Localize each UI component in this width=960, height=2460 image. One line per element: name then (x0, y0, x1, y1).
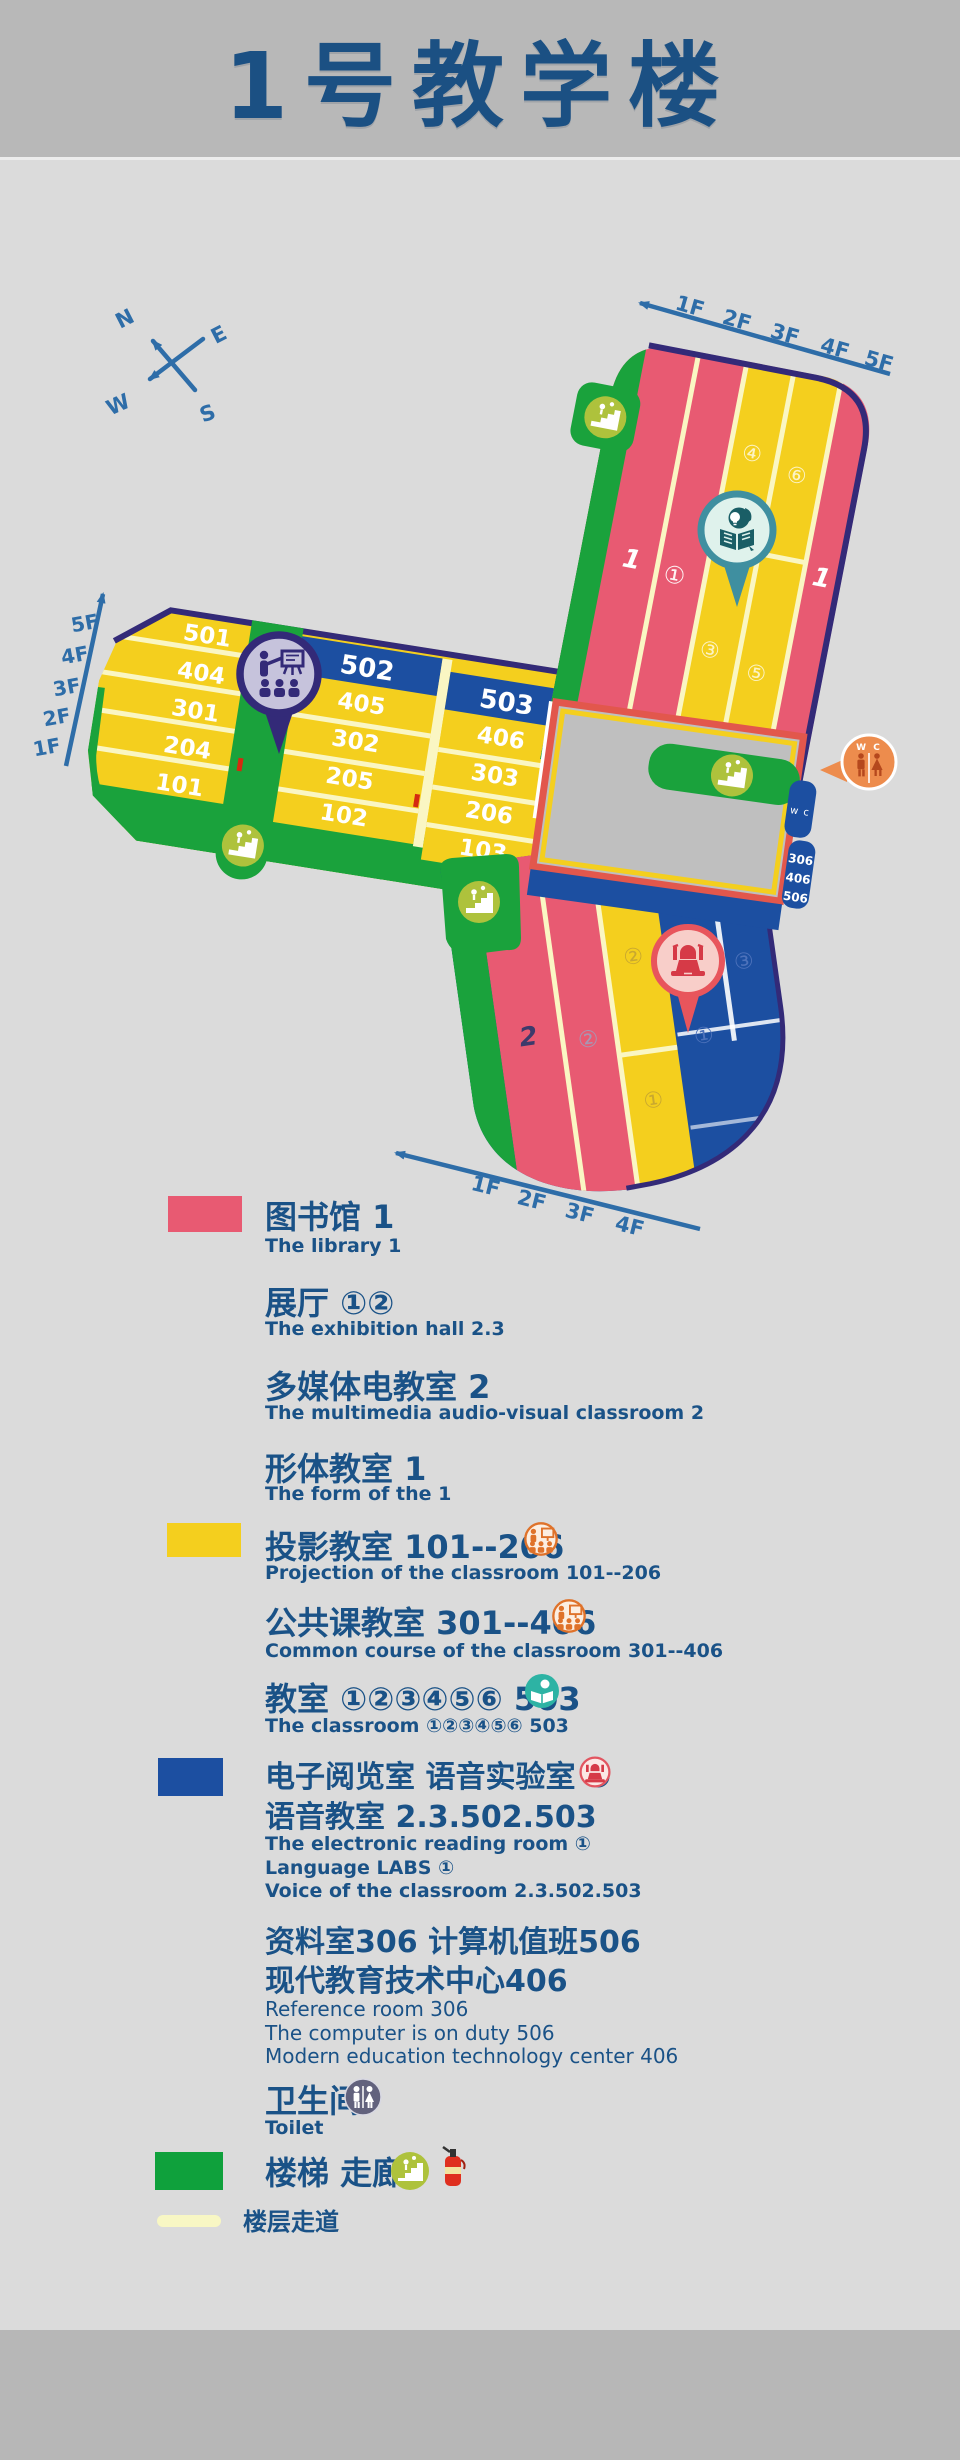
page-title: 1号教学楼 (224, 12, 736, 145)
zone-label: ① (692, 1023, 715, 1051)
legend-en: Common course of the classroom 301--406 (265, 1640, 723, 1662)
fire-extinguisher-icon (440, 2144, 466, 2196)
legend-title: 资料室306 计算机值班506 (265, 1917, 641, 1961)
legend-en: The electronic reading room ① (265, 1833, 591, 1855)
floor-label: 1F (31, 733, 62, 761)
compass-w: W (103, 389, 134, 420)
title-banner: 1号教学楼 (0, 0, 960, 160)
floor-label: 3F (768, 319, 802, 350)
floor-label: 4F (59, 641, 90, 669)
floor-label: 3F (51, 673, 82, 701)
legend-title: 公共课教室 301--406 (265, 1598, 596, 1644)
legend-en: Language LABS ① (265, 1857, 454, 1879)
floor-label: 2F (41, 703, 72, 731)
common-classroom-icon (550, 1597, 588, 1639)
legend-en: Modern education technology center 406 (265, 2044, 678, 2068)
classroom-icon (522, 1671, 562, 1715)
legend-en: The form of the 1 (265, 1483, 451, 1505)
legend-en: The multimedia audio-visual classroom 2 (265, 1402, 704, 1424)
legend-en: Toilet (265, 2117, 323, 2139)
zone-label: ① (642, 1087, 665, 1115)
language-lab-icon (577, 1754, 613, 1794)
zone-label: ② (622, 944, 645, 972)
floor-plan-map: N E W S 1F 2F 3F 4F 5F 5F 4F 3F 2F 1F 1F… (0, 0, 960, 2460)
legend-title: 楼梯 走廊 (265, 2148, 404, 2194)
legend-title: 图书馆 1 (265, 1192, 394, 1238)
wc-pin-label: W C (856, 743, 882, 753)
legend-title2: 语音教室 2.3.502.503 (265, 1792, 597, 1836)
legend-swatch-electronic (158, 1758, 223, 1796)
projection-classroom-icon (522, 1520, 560, 1562)
legend-title: 电子阅览室 语音实验室 ① (265, 1752, 611, 1796)
floor-label: 1F (673, 291, 707, 322)
legend-label: 楼层走道 (243, 2202, 339, 2237)
zone-label: ② (576, 1026, 600, 1055)
legend-swatch-library (168, 1196, 242, 1232)
stairs-icon (388, 2149, 432, 2197)
building-map-sign: N E W S 1F 2F 3F 4F 5F 5F 4F 3F 2F 1F 1F… (0, 0, 960, 2460)
zone-label: ③ (733, 948, 756, 976)
footer-band (0, 2330, 960, 2460)
legend-en: The exhibition hall 2.3 (265, 1318, 505, 1340)
legend-swatch-projection (167, 1523, 241, 1557)
compass-rose: N E W S (103, 304, 231, 427)
floor-label: 5F (862, 346, 896, 377)
legend-en: The classroom ①②③④⑤⑥ 503 (265, 1715, 569, 1737)
legend-swatch-corridor (157, 2215, 221, 2227)
compass-s: S (196, 400, 218, 428)
floor-label: 2F (720, 305, 754, 336)
toilet-pin: W C (820, 735, 896, 789)
floor-label: 5F (69, 609, 100, 637)
legend-en: Reference room 306 (265, 1997, 468, 2021)
courtyard (522, 701, 806, 930)
compass-e: E (207, 321, 231, 349)
legend-swatch-stairs (155, 2152, 223, 2190)
legend-en: The library 1 (265, 1235, 401, 1257)
legend-en: The computer is on duty 506 (265, 2021, 555, 2045)
legend-en: Voice of the classroom 2.3.502.503 (265, 1880, 642, 1902)
floor-label: 1F (469, 1171, 503, 1201)
floor-label: 4F (818, 333, 852, 364)
compass-n: N (112, 304, 139, 333)
toilet-icon (342, 2076, 384, 2122)
legend-en: Projection of the classroom 101--206 (265, 1562, 661, 1584)
legend-title2: 现代教育技术中心406 (265, 1956, 568, 2000)
